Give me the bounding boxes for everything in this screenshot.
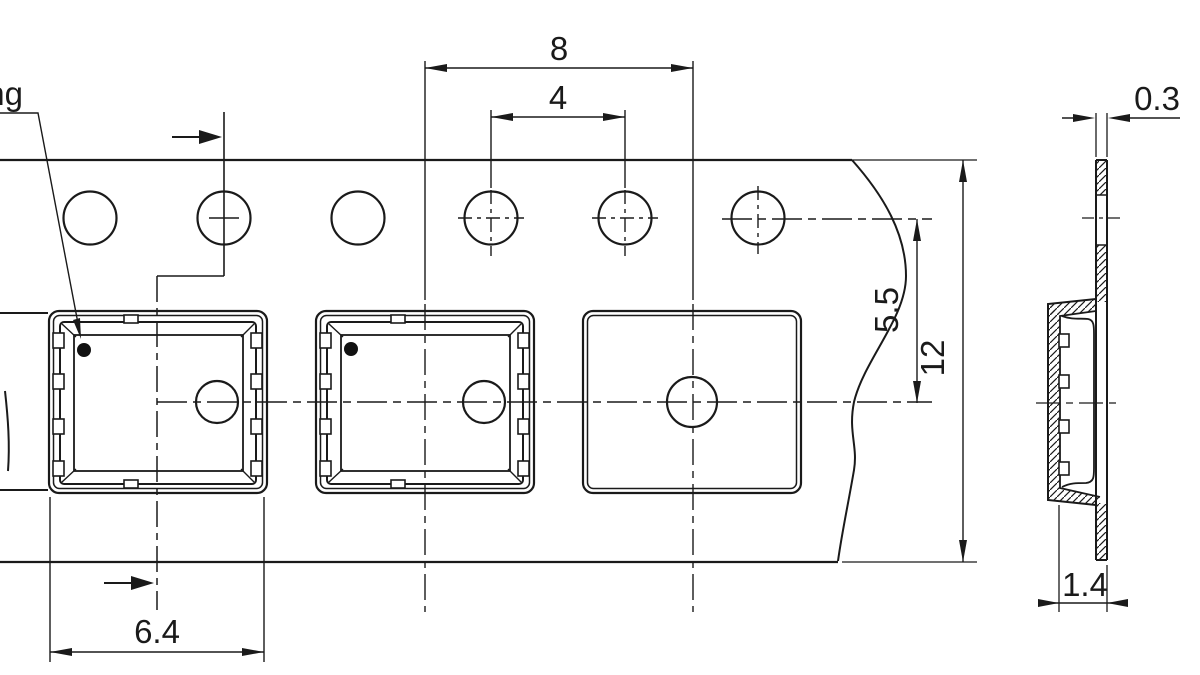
dim-pocket-pitch: 8 — [425, 30, 693, 300]
centerlines — [157, 186, 932, 612]
dim-text-0-3: 0.3 — [1134, 80, 1180, 117]
sprocket-hole — [332, 192, 385, 245]
strip-hatch-mid — [1096, 245, 1107, 302]
sprocket-hole — [64, 192, 117, 245]
front-view — [0, 160, 906, 562]
partial-pocket-left — [0, 313, 48, 490]
dim-tape-thickness: 0.3 — [1062, 80, 1180, 157]
hole-cut-edges — [1096, 195, 1107, 245]
dim-text-1-4: 1.4 — [1062, 566, 1108, 603]
dim-pocket-depth: 1.4 — [1038, 505, 1128, 612]
dim-text-6-4: 6.4 — [134, 613, 180, 650]
dim-hole-pitch: 4 — [491, 79, 625, 188]
dim-text-12: 12 — [914, 340, 951, 377]
section-arrow-top — [199, 130, 222, 144]
sprocket-holes — [64, 192, 785, 245]
strip-hatch-bottom — [1096, 503, 1107, 560]
pin1-marking-dot — [77, 343, 91, 357]
dim-text-8: 8 — [550, 30, 568, 67]
drawing-canvas: ng 8 4 5.5 — [0, 0, 1200, 675]
section-arrow-bottom — [131, 576, 154, 590]
dim-text-5-5: 5.5 — [868, 287, 905, 333]
tape-and-reel-drawing: ng 8 4 5.5 — [0, 0, 1200, 675]
dim-tape-width: 12 — [842, 160, 977, 562]
pin1-marking-dot — [344, 342, 358, 356]
strip-hatch-top — [1096, 160, 1107, 195]
marking-label: ng — [0, 75, 23, 112]
pocket-wall-hatch — [1048, 304, 1060, 500]
dim-text-4: 4 — [549, 79, 567, 116]
side-view: 0.3 1.4 — [1036, 80, 1180, 612]
tape-break-line — [838, 160, 906, 561]
